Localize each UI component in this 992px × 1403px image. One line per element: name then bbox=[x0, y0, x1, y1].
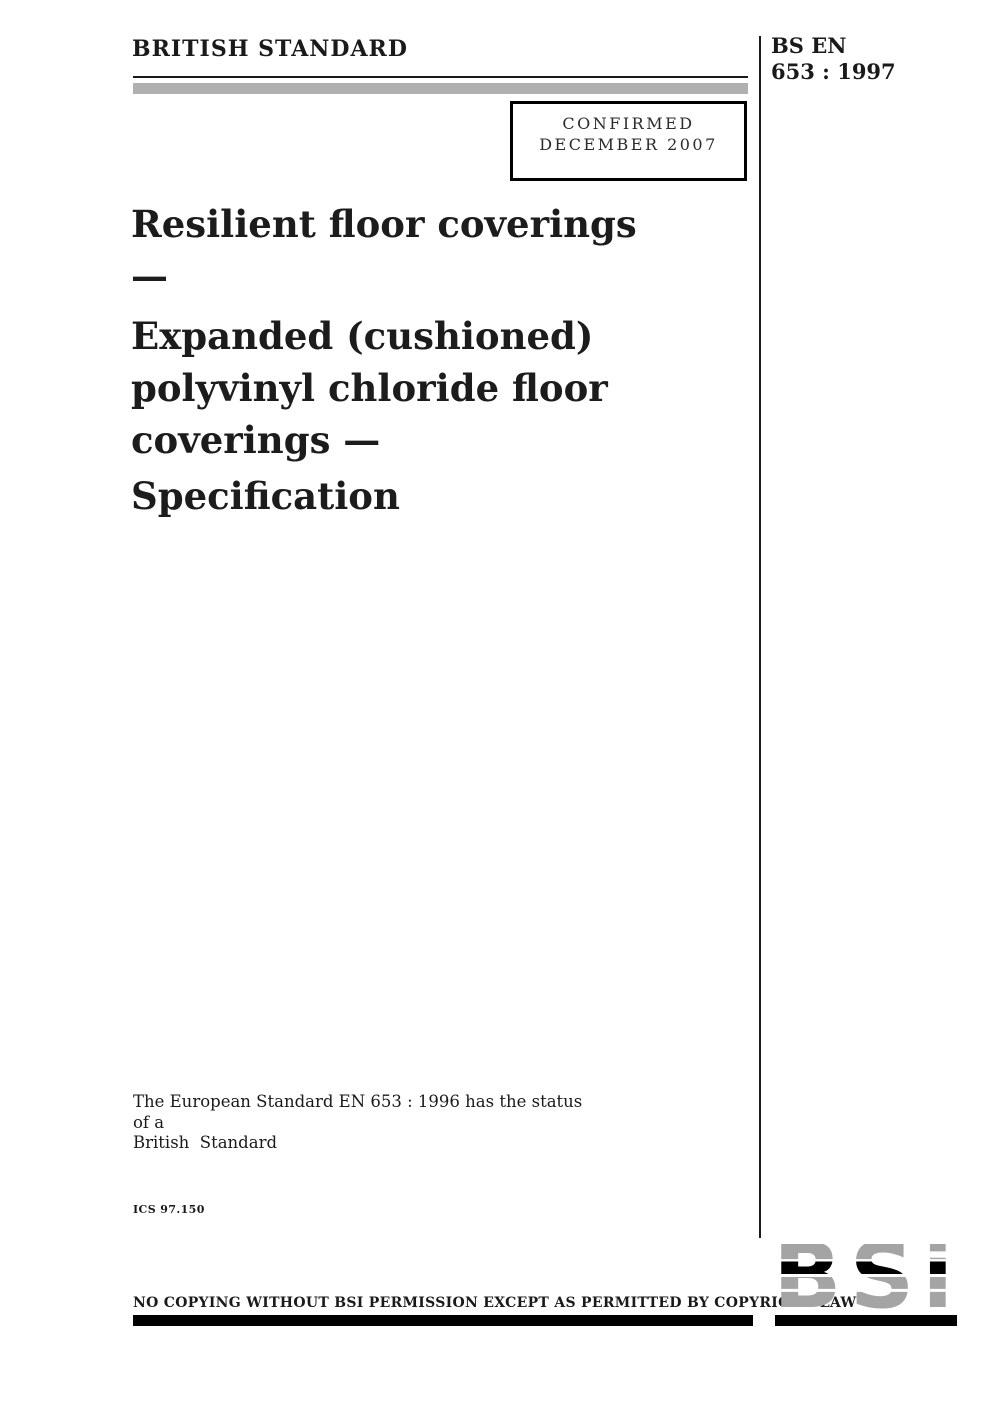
standard-code-line2: 653 : 1997 bbox=[771, 59, 896, 85]
title-paragraph-2: Expanded (cushioned) polyvinyl chloride … bbox=[131, 310, 651, 466]
confirmed-box: CONFIRMED DECEMBER 2007 bbox=[510, 101, 747, 181]
british-standard-heading: BRITISH STANDARD bbox=[132, 36, 408, 62]
standard-code: BS EN 653 : 1997 bbox=[771, 33, 896, 85]
status-note-line: The European Standard EN 653 : 1996 has … bbox=[133, 1092, 603, 1133]
title-paragraph-1: Resilient floor coverings — bbox=[131, 198, 651, 302]
status-note: The European Standard EN 653 : 1996 has … bbox=[133, 1092, 603, 1154]
ics-code: ICS 97.150 bbox=[133, 1203, 205, 1216]
header-gray-bar bbox=[133, 83, 748, 94]
copyright-bar bbox=[133, 1315, 753, 1326]
header-rule bbox=[133, 76, 748, 78]
vertical-divider bbox=[759, 36, 761, 1238]
document-page: BRITISH STANDARD BS EN 653 : 1997 CONFIR… bbox=[0, 0, 992, 1403]
confirmed-label: CONFIRMED bbox=[513, 113, 744, 134]
title-line: polyvinyl chloride floor bbox=[131, 362, 651, 414]
standard-code-line1: BS EN bbox=[771, 33, 896, 59]
status-note-line: British Standard bbox=[133, 1133, 603, 1154]
title-line: Specification bbox=[131, 470, 651, 522]
bsi-logo: BSi BSi BSi BSi bbox=[773, 1244, 957, 1326]
title-line: Resilient floor coverings — bbox=[131, 198, 651, 302]
title-line: Expanded (cushioned) bbox=[131, 310, 651, 362]
bsi-logo-letters: BSi BSi BSi BSi bbox=[773, 1244, 957, 1310]
title-line: coverings — bbox=[131, 414, 651, 466]
document-title: Resilient floor coverings — Expanded (cu… bbox=[131, 198, 651, 522]
copyright-notice: NO COPYING WITHOUT BSI PERMISSION EXCEPT… bbox=[133, 1295, 753, 1311]
title-paragraph-3: Specification bbox=[131, 470, 651, 522]
confirmed-date: DECEMBER 2007 bbox=[513, 134, 744, 155]
bsi-logo-base-bar bbox=[775, 1315, 957, 1326]
